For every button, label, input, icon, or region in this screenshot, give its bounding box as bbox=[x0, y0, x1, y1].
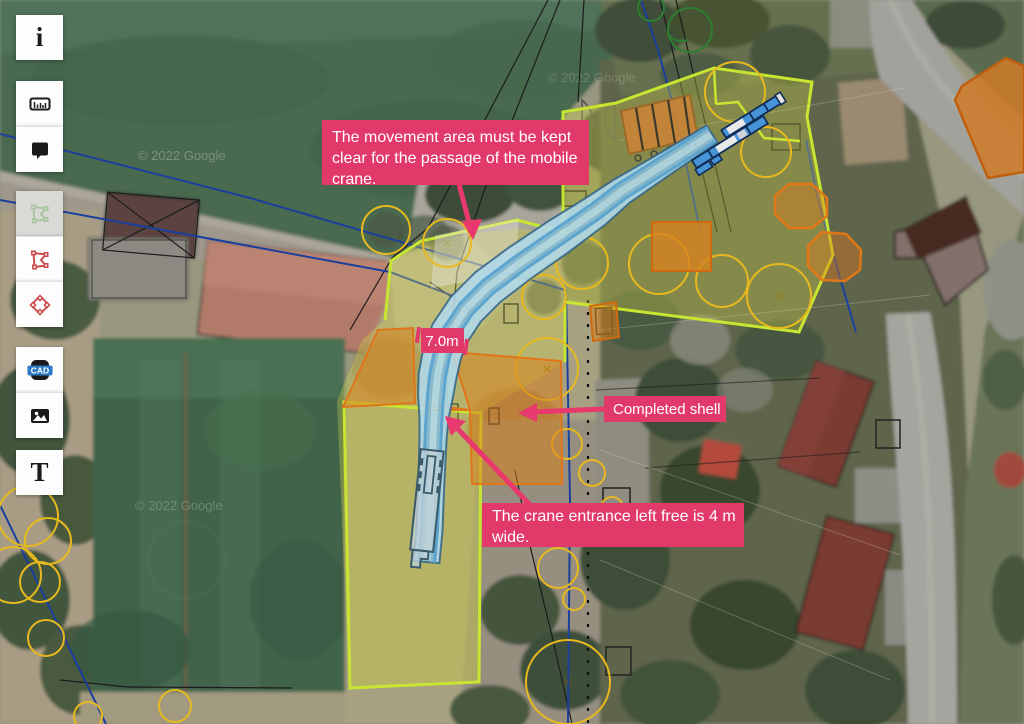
svg-text:The movement area must be kept: The movement area must be kept bbox=[332, 129, 572, 146]
svg-text:Completed shell: Completed shell bbox=[613, 401, 721, 418]
svg-text:The crane entrance left free i: The crane entrance left free is 4 m bbox=[492, 508, 736, 525]
svg-text:wide.: wide. bbox=[491, 529, 529, 546]
svg-text:© 2022 Google: © 2022 Google bbox=[138, 148, 226, 163]
svg-text:clear for the passage of the m: clear for the passage of the mobile bbox=[332, 150, 578, 167]
svg-text:CAD: CAD bbox=[30, 365, 48, 375]
svg-text:© 2022 Google: © 2022 Google bbox=[548, 70, 636, 85]
svg-text:7.0m: 7.0m bbox=[425, 333, 458, 350]
svg-text:crane.: crane. bbox=[332, 171, 376, 188]
svg-text:© 2022 Google: © 2022 Google bbox=[135, 498, 223, 513]
